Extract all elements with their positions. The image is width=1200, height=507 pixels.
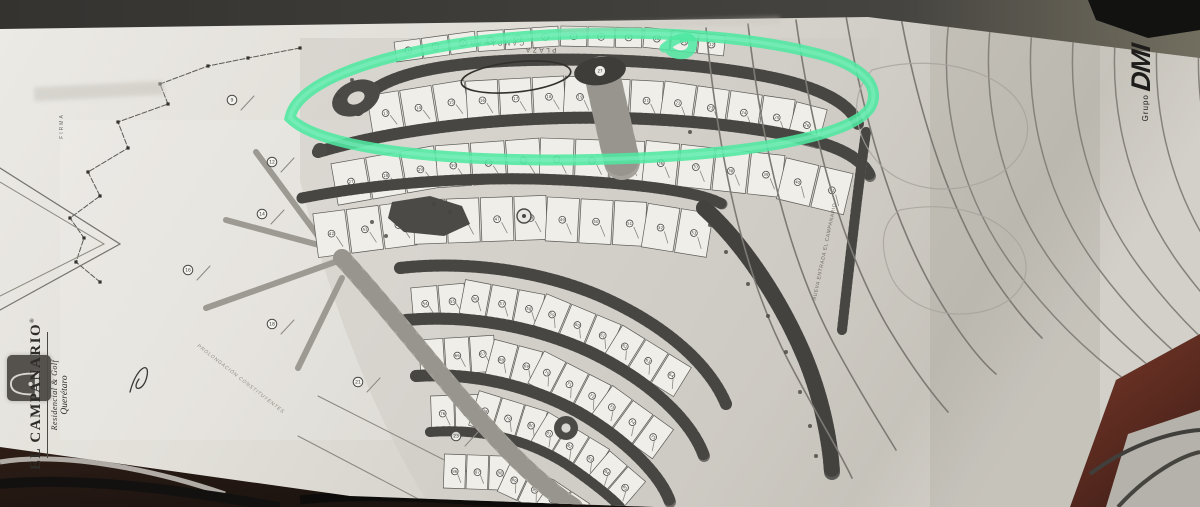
lot-number: 17 <box>513 96 519 101</box>
survey-marker <box>98 194 101 197</box>
tree-speckle <box>708 223 712 227</box>
parcel-number: 14 <box>259 212 265 218</box>
tree-speckle <box>336 94 340 98</box>
tree-speckle <box>350 78 354 82</box>
lot: 36 <box>642 140 680 185</box>
lot-number: 37 <box>693 164 699 170</box>
parcel-number: 21 <box>355 380 361 386</box>
tree-speckle <box>448 210 452 214</box>
lot-number: 86 <box>452 469 458 474</box>
tree-speckle <box>746 282 750 286</box>
lot-number: 51 <box>627 221 633 226</box>
survey-marker <box>86 170 89 173</box>
parcel-number: 12 <box>269 160 275 166</box>
brand-big-text: DMI <box>1129 43 1153 92</box>
lot-number: 16 <box>480 98 486 103</box>
lot: 51 <box>612 201 646 247</box>
survey-marker <box>98 280 101 283</box>
street-texture <box>602 74 622 162</box>
survey-marker <box>116 120 119 123</box>
tree-speckle <box>724 250 728 254</box>
registered-mark: ® <box>30 317 36 323</box>
lot-number: 49 <box>560 217 566 222</box>
survey-marker <box>298 46 301 49</box>
lot-number: 18 <box>546 94 552 99</box>
parcel-number: 9 <box>231 98 234 104</box>
firma-label: FIRMA <box>59 113 65 139</box>
survey-marker <box>246 56 249 59</box>
tree-speckle <box>658 118 662 122</box>
lot-number: 19 <box>577 94 583 99</box>
lot-number: 47 <box>494 216 500 221</box>
lot: 27 <box>331 158 371 205</box>
lot-number: 50 <box>593 219 599 224</box>
lot-number: 67 <box>480 351 486 356</box>
lot: 87 <box>466 455 489 490</box>
campanario-logo-subtitle: Residencial & Golf <box>50 320 59 470</box>
logo-rule <box>47 332 48 458</box>
lot-number: 54 <box>422 301 428 306</box>
lot: 17 <box>499 78 533 120</box>
roundabout-number: 27 <box>597 69 603 74</box>
brand-small-text: Grupo <box>1141 94 1153 121</box>
parcel-number: 23 <box>453 434 459 440</box>
lot-number: 21 <box>644 98 650 103</box>
lot-number: 88 <box>497 470 503 475</box>
lot: 86 <box>443 454 466 489</box>
lot: 66 <box>444 337 470 374</box>
culdesac-bulb <box>313 143 327 157</box>
survey-marker <box>126 146 129 149</box>
lot-number: 55 <box>450 298 456 303</box>
roundabout-lower <box>554 416 578 440</box>
campanario-logo-block: EL CAMPANARIO® Residencial & Golf Querét… <box>28 320 158 470</box>
scene-canvas: 1234567891011121314151617181920212223242… <box>0 0 1200 507</box>
plaza-word: PLAZA <box>523 46 556 53</box>
tree-speckle <box>798 390 802 394</box>
lot-number: 87 <box>475 470 481 475</box>
tree-speckle <box>766 314 770 318</box>
grupo-dmi-logo: Grupo DMI <box>1075 41 1153 125</box>
lot: 43 <box>346 205 383 253</box>
lot: 49 <box>545 197 579 243</box>
lot-number: 30 <box>451 163 457 168</box>
survey-marker <box>74 260 77 263</box>
parcel-number: 18 <box>269 322 275 328</box>
campanario-logo-city: Querétaro <box>60 320 70 470</box>
parcel-number: 16 <box>185 268 191 274</box>
survey-marker <box>82 236 85 239</box>
tree-speckle <box>432 202 436 206</box>
lot-number: 66 <box>455 353 461 358</box>
survey-marker <box>68 216 71 219</box>
photo-of-site-plan: 1234567891011121314151617181920212223242… <box>0 0 1200 507</box>
lot: 47 <box>480 197 514 242</box>
tree-speckle <box>814 454 818 458</box>
survey-marker <box>206 64 209 67</box>
campanario-logo-name: EL CAMPANARIO® <box>28 320 45 470</box>
survey-marker <box>166 102 169 105</box>
tree-speckle <box>370 220 374 224</box>
lot-number: 38 <box>728 168 734 174</box>
tree-speckle <box>808 424 812 428</box>
tree-speckle <box>688 130 692 134</box>
tree-speckle <box>384 234 388 238</box>
tree-speckle <box>784 350 788 354</box>
lot: 16 <box>466 80 500 122</box>
lot-number: 76 <box>440 411 446 416</box>
lot: 52 <box>641 203 680 252</box>
lot: 50 <box>579 199 613 245</box>
lot-number: 39 <box>763 172 769 178</box>
